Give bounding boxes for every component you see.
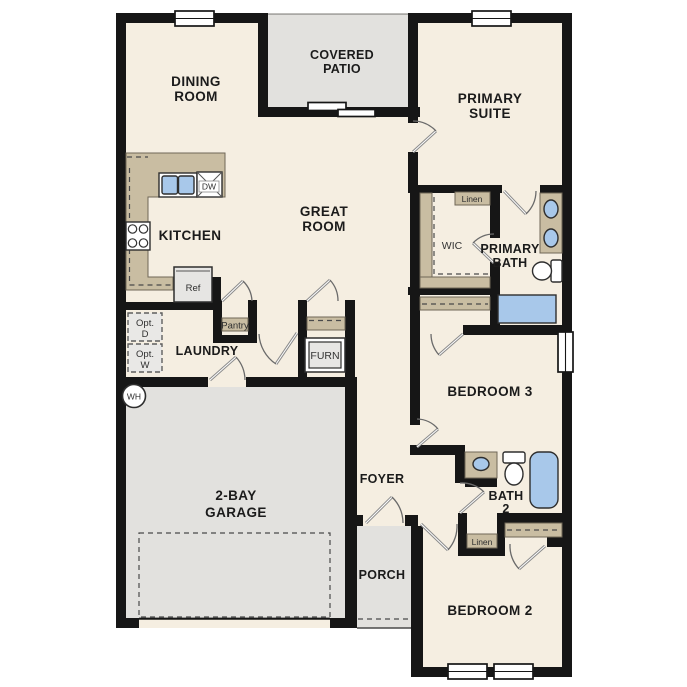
wic-label: WIC: [442, 240, 463, 252]
floor-plan: DW Ref Opt. D Opt. W FURN: [0, 0, 687, 687]
wic-shelf-side: [420, 193, 432, 288]
primary-suite-window: [472, 11, 511, 26]
wic-shelf-bottom: [420, 277, 490, 288]
great-room-label-1: GREAT: [300, 204, 349, 219]
primary-bath-label-1: PRIMARY: [480, 242, 540, 256]
dishwasher: DW: [197, 172, 222, 197]
linen-hall-label: Linen: [472, 537, 493, 547]
water-heater: WH: [123, 385, 146, 408]
water-heater-label: WH: [127, 392, 141, 402]
primary-suite-label-1: PRIMARY: [458, 91, 523, 106]
range-stove: [126, 222, 150, 250]
foyer-label: FOYER: [360, 472, 405, 486]
bath2-vanity: [465, 452, 497, 478]
primary-suite-label-2: SUITE: [469, 106, 511, 121]
kitchen-sink: [159, 173, 197, 197]
bedroom2-window-left: [448, 664, 487, 679]
porch-label: PORCH: [359, 568, 406, 582]
great-room-label-2: ROOM: [302, 219, 346, 234]
patio-label-1: COVERED: [310, 48, 374, 62]
bedroom2-window-right: [494, 664, 533, 679]
bath2-label-1: BATH: [489, 489, 524, 503]
bath2-label-2: 2: [502, 502, 509, 516]
bedroom3-window: [558, 332, 573, 372]
bedroom3-label: BEDROOM 3: [447, 384, 532, 399]
patio-label-2: PATIO: [323, 62, 361, 76]
linen-primary-label: Linen: [462, 194, 483, 204]
optional-dryer: Opt. D: [128, 313, 162, 341]
primary-tub: [498, 295, 556, 323]
refrigerator: Ref: [174, 267, 212, 302]
furnace: FURN: [305, 338, 345, 372]
bath2-toilet: [503, 452, 525, 485]
opt-dryer-label-2: D: [142, 329, 149, 340]
furnace-closet-shelf: [307, 317, 345, 330]
laundry-label: LAUNDRY: [176, 344, 239, 358]
dining-window: [175, 11, 214, 26]
refrigerator-label: Ref: [186, 283, 201, 294]
garage-label-1: 2-BAY: [215, 488, 256, 503]
kitchen-label: KITCHEN: [159, 228, 222, 243]
pantry-label: Pantry: [221, 321, 249, 332]
floor-plan-canvas: DW Ref Opt. D Opt. W FURN: [0, 0, 687, 687]
opt-washer-label-2: W: [141, 360, 150, 371]
garage-label-2: GARAGE: [205, 505, 267, 520]
opt-washer-label-1: Opt.: [136, 349, 154, 360]
dining-label-2: ROOM: [174, 89, 218, 104]
bedroom2-label: BEDROOM 2: [447, 603, 532, 618]
opt-dryer-label-1: Opt.: [136, 318, 154, 329]
primary-toilet: [533, 260, 563, 282]
optional-washer: Opt. W: [128, 344, 162, 372]
furnace-label: FURN: [310, 350, 339, 362]
bath2-tub: [530, 452, 558, 508]
primary-bath-label-2: BATH: [493, 256, 528, 270]
primary-vanity: [540, 193, 562, 253]
dining-label-1: DINING: [171, 74, 221, 89]
dishwasher-label: DW: [202, 182, 216, 192]
